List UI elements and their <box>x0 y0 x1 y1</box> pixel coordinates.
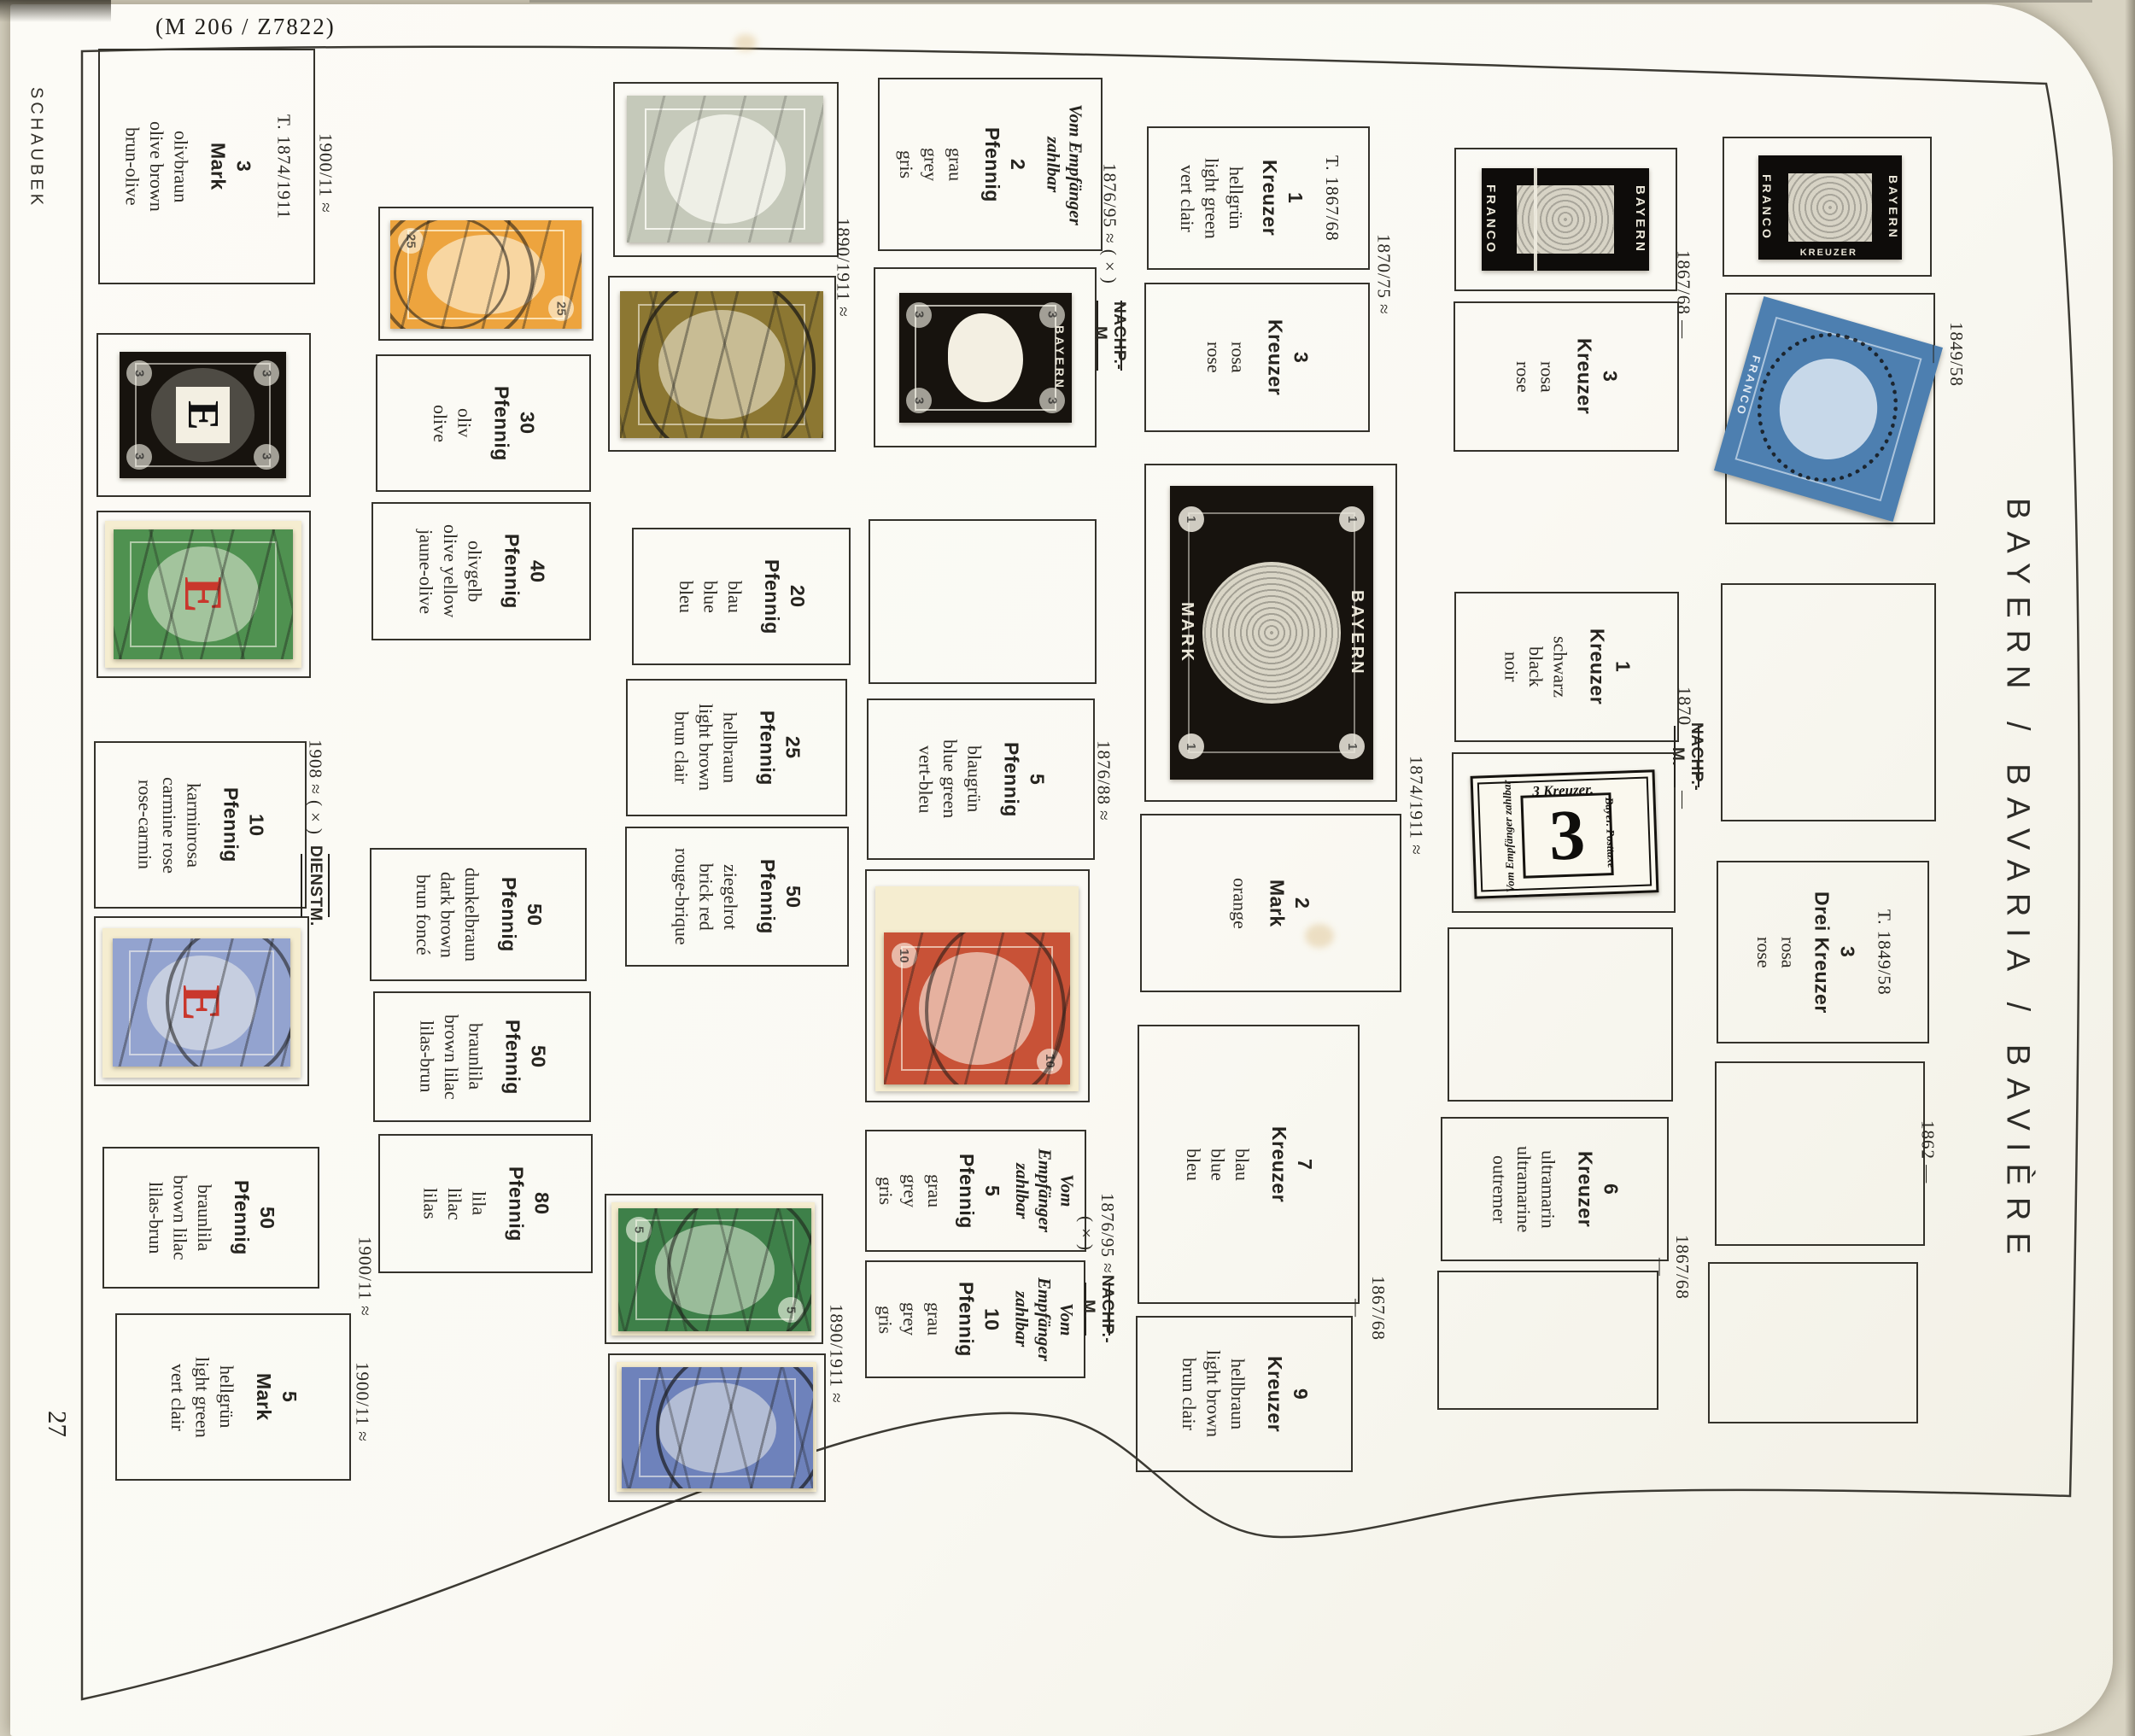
year-annotation: 1900/11 ≈ <box>351 1361 373 1442</box>
stamp-space: T. 1867/68 1 Kreuzer hellgrün light gree… <box>1147 126 1370 270</box>
postmark-icon <box>113 938 290 1067</box>
postmark-icon <box>627 96 823 243</box>
box-value: 20 Pfennig <box>758 559 810 634</box>
dienstmarken-tag: DIENSTM. <box>301 854 330 917</box>
box-due-text: Vom Empfänger zahlbar <box>1042 104 1087 225</box>
postmark-icon <box>618 1208 811 1331</box>
stamp-space: 5 5 <box>605 1194 823 1344</box>
postmark-icon <box>620 291 823 438</box>
box-value: 40 Pfennig <box>499 534 550 609</box>
year-annotation: 1900/11 ≈ <box>313 114 338 233</box>
stamp-space: 5 Pfennig blaugrün blue green vert-bleu <box>867 698 1095 860</box>
stamp-space: Vom Empfänger zahlbar 5 Pfennig grau gre… <box>865 1130 1086 1252</box>
stamp-space <box>613 82 839 257</box>
box-value: 3 Drei Kreuzer <box>1809 891 1860 1014</box>
box-value: 5 Mark <box>250 1373 301 1421</box>
year-annotation: 1870/75 ≈ <box>1373 232 1394 316</box>
stamp-space <box>608 276 836 452</box>
stamp-center-oval <box>1202 562 1341 703</box>
box-value: 5 Pfennig <box>953 1154 1004 1229</box>
stamp-1kr-black-1849: BAYERN FRANCO <box>1482 168 1649 271</box>
box-value: 50 Pfennig <box>500 1020 551 1095</box>
stamp-space-empty <box>1437 1271 1658 1410</box>
stamp-space: BAYERN MARK 1 1 1 1 <box>1144 464 1397 802</box>
stamp-franco-label: FRANCO <box>1760 155 1774 260</box>
stamp-5pf-official-green: E <box>114 529 293 659</box>
box-colors: blaugrün blue green vert-bleu <box>913 739 986 818</box>
box-colors: olivbraun olive brown brun-olive <box>120 121 193 212</box>
year-annotation: 1867/68 — <box>1672 249 1694 340</box>
stamp-space-empty <box>1715 1061 1925 1246</box>
box-colors: ultramarin ultramarine outremer <box>1487 1146 1560 1232</box>
stamp-space: 6 Kreuzer ultramarin ultramarine outreme… <box>1441 1117 1669 1261</box>
box-colors: blau blue bleu <box>1180 1149 1254 1181</box>
stamp-guilloche <box>1517 185 1614 253</box>
stamp-space: 20 Pfennig blau blue bleu <box>632 528 851 665</box>
stamp-3pf-postage-due-black: 3 3 3 3 BAYERN <box>899 293 1072 423</box>
stamp-label: Bayer. Posttaxe <box>1602 797 1618 868</box>
year-annotation: 1849/58 — <box>1935 312 1956 397</box>
postmark-icon <box>884 932 1070 1084</box>
box-colors: karminrosa carmine rose rose-carmin <box>132 777 206 874</box>
box-value: 7 Kreuzer <box>1266 1126 1317 1202</box>
box-colors: grau grey gris <box>873 1174 946 1207</box>
box-colors: braunlila brown lilac lilas-brun <box>143 1175 216 1260</box>
denomination: 3 <box>254 360 279 386</box>
year-annotation: 1876/95 ≈ (×) <box>1098 150 1120 297</box>
year-annotation: 1900/11 ≈ <box>354 1231 376 1321</box>
stamp-space: 9 Kreuzer hellbraun light brown brun cla… <box>1136 1316 1353 1472</box>
stamp-space: 3 3 3 3 BAYERN <box>874 267 1097 447</box>
box-value: 50 Pfennig <box>495 877 547 952</box>
stamp-20pf-official-blue: E <box>113 938 290 1067</box>
stamp-space: 50 Pfennig ziegelrot brick red rouge-bri… <box>625 827 849 967</box>
stamp-space: 5 Mark hellgrün light green vert clair <box>115 1313 351 1481</box>
dash-annotation: — <box>1674 787 1693 813</box>
stamp-space-empty <box>1721 583 1936 821</box>
box-value: 3 Mark <box>205 143 256 190</box>
stamp-space: 80 Pfennig lila lilac lilas <box>378 1134 593 1273</box>
stamp-3kr-blue-1849: FRANCO <box>1714 296 1943 522</box>
stamp-space: Vom Empfänger zahlbar 2 Pfennig grau gre… <box>878 78 1103 251</box>
box-due-text: Vom Empfänger zahlbar <box>1010 1262 1078 1377</box>
year-annotation: 1876/95 ≈ (×) <box>1086 1185 1107 1281</box>
stamp-space: T. 1874/1911 3 Mark olivbraun olive brow… <box>98 49 315 284</box>
box-colors: hellbraun light brown brun clair <box>1176 1350 1249 1437</box>
stamp-space: 50 Pfennig braunlila brown lilac lilas-b… <box>102 1147 319 1289</box>
album-photo: (M 206 / Z7822) SCHAUBEK 27 BAYERN / BAV… <box>0 0 2135 1736</box>
stamp-space: 25 Pfennig hellbraun light brown brun cl… <box>626 679 847 816</box>
stamp-2pf-grey <box>627 96 823 243</box>
stamp-center <box>948 313 1024 401</box>
e-overprint: E <box>176 387 229 442</box>
stamp-space: E <box>97 511 311 678</box>
box-value: 10 Pfennig <box>218 787 269 862</box>
year-annotation: 1870 <box>1674 688 1694 724</box>
stamp-space: 3 3 3 3 E <box>97 333 311 497</box>
year-annotation: 1874/1911 ≈ <box>1405 753 1427 857</box>
box-value: 9 Kreuzer <box>1261 1356 1313 1432</box>
stamp-space-empty <box>869 519 1097 684</box>
box-colors: grau grey gris <box>873 1302 946 1336</box>
stamp-space: BAYERN FRANCO <box>1454 148 1677 291</box>
box-colors: hellgrün light green vert clair <box>1174 158 1248 239</box>
box-colors: orange <box>1227 878 1252 929</box>
box-value: 80 Pfennig <box>503 1166 554 1242</box>
box-value: 3 Kreuzer <box>1262 319 1313 395</box>
stamp-space <box>608 1353 826 1502</box>
box-colors: dunkelbraun dark brown brun foncé <box>410 868 483 962</box>
box-value: 25 Pfennig <box>754 710 805 786</box>
stamp-space: 2 Mark orange <box>1140 814 1401 992</box>
stamp-franco-label: FRANCO <box>1483 168 1498 271</box>
box-value: 50 Pfennig <box>228 1180 279 1255</box>
box-colors: hellbraun light brown brun clair <box>669 704 742 791</box>
stamp-guilloche <box>1788 173 1871 243</box>
stamp-space: 50 Pfennig braunlila brown lilac lilas-b… <box>373 991 591 1122</box>
stamp-space: 25 25 <box>378 207 594 341</box>
box-value: 10 Pfennig <box>953 1282 1004 1357</box>
year-annotation: 1890/1911 ≈ <box>832 203 854 331</box>
denomination: 1 <box>1179 506 1204 532</box>
stamp-3pf-olive <box>620 291 823 438</box>
denomination: 3 <box>906 302 932 328</box>
stamp-country-label: BAYERN <box>1886 155 1900 260</box>
stamp-20pf-blue <box>622 1367 813 1488</box>
photo-catalog-label: (M 206 / Z7822) <box>155 14 336 40</box>
postmark-icon <box>622 1367 813 1488</box>
stamp-space: E <box>94 916 309 1086</box>
box-colors: rosa rose <box>1752 937 1800 968</box>
nachportomarken-tag: NACHP.-M. <box>1097 301 1122 371</box>
box-colors: olivgelb olive yellow jaune-olive <box>413 524 487 617</box>
box-value: 6 Kreuzer <box>1572 1151 1623 1227</box>
box-due-text: Vom Empfänger zahlbar <box>1011 1131 1079 1250</box>
stamp-space: 10 10 <box>865 869 1090 1102</box>
box-colors: blau blue bleu <box>673 581 746 613</box>
page-title: BAYERN / BAVARIA / BAVIÈRE <box>1990 383 2044 1382</box>
box-value: 1 Kreuzer <box>1584 628 1635 704</box>
denomination: 3 <box>126 360 152 386</box>
box-colors: ziegelrot brick red rouge-brique <box>669 848 742 945</box>
box-value: 2 Pfennig <box>979 127 1030 202</box>
box-value: 1 Kreuzer <box>1256 160 1307 236</box>
stamp-numeral: 3 <box>1520 792 1614 879</box>
stamp-space: 10 Pfennig karminrosa carmine rose rose-… <box>94 741 307 909</box>
box-value: 50 Pfennig <box>754 859 805 934</box>
box-value: 2 Mark <box>1263 880 1314 927</box>
denomination: 1 <box>1179 734 1204 759</box>
foxing-spot <box>734 34 757 51</box>
stamp-5pf-green: 5 5 <box>618 1208 811 1331</box>
denomination: 3 <box>126 444 152 470</box>
stamp-space: 3 Kreuzer rosa rose <box>1454 301 1679 452</box>
box-colors: lila lilac lilas <box>418 1188 491 1220</box>
box-colors: grau grey gris <box>893 148 967 181</box>
box-value: 3 Kreuzer <box>1571 338 1623 414</box>
stamp-space: T. 1849/58 3 Drei Kreuzer rosa rose <box>1717 861 1929 1043</box>
box-colors: oliv olive <box>428 405 477 442</box>
stamp-25pf-orange: 25 25 <box>390 220 582 329</box>
stamp-space: 3 Kreuzer rosa rose <box>1144 283 1370 432</box>
stamp-space: 40 Pfennig olivgelb olive yellow jaune-o… <box>371 502 591 640</box>
box-colors: rosa rose <box>1202 342 1250 373</box>
denomination: 3 <box>254 444 279 470</box>
stamp-crease <box>1534 168 1537 271</box>
stamp-space-empty <box>1708 1262 1918 1423</box>
stamp-space: 50 Pfennig dunkelbraun dark brown brun f… <box>370 848 587 981</box>
stamp-3pf-official-black: 3 3 3 3 E <box>120 352 286 478</box>
nachportomarken-tag: NACHP.-M. <box>1674 726 1699 787</box>
stamp-space: 1 Kreuzer schwarz black noir <box>1454 592 1679 742</box>
album-brand: SCHAUBEK <box>20 87 51 215</box>
postmark-icon <box>114 529 293 659</box>
box-value: 30 Pfennig <box>488 386 540 461</box>
stamp-space: 30 Pfennig oliv olive <box>376 354 591 492</box>
stamp-country-label: BAYERN <box>1633 168 1647 271</box>
stamp-country-label: BAYERN <box>1053 293 1067 423</box>
year-annotation: 1890/1911 ≈ <box>825 1299 847 1408</box>
year-annotation: 1862 — <box>1917 1110 1938 1194</box>
box-colors: rosa rose <box>1511 361 1559 393</box>
box-colors: schwarz black noir <box>1499 636 1572 698</box>
year-annotation: 1876/88 ≈ <box>1093 733 1114 828</box>
postmark-icon <box>390 220 582 329</box>
box-colors: hellgrün light green vert clair <box>165 1357 238 1438</box>
stamp-space: 3 Kreuzer. 3 Bayer. Posttaxe Vom Empfäng… <box>1452 752 1676 913</box>
stamp-space: BAYERN FRANCO KREUZER <box>1723 137 1932 277</box>
box-header: T. 1867/68 <box>1321 155 1342 242</box>
year-annotation: 1908 ≈ (×) <box>302 726 328 850</box>
stamp-10pf-red: 10 10 <box>884 932 1070 1084</box>
box-value: 5 Pfennig <box>998 742 1050 817</box>
box-header: T. 1849/58 <box>1873 909 1894 996</box>
box-header: T. 1874/1911 <box>272 114 294 219</box>
stamp-space: FRANCO <box>1725 293 1935 524</box>
stamp-1-mark-black: BAYERN MARK 1 1 1 1 <box>1170 486 1373 780</box>
stamp-schwarzer-einser: BAYERN FRANCO KREUZER <box>1758 155 1902 260</box>
page-number: 27 <box>39 1397 75 1450</box>
stamp-space: Vom Empfänger zahlbar 10 Pfennig grau gr… <box>865 1260 1085 1378</box>
year-annotation: 1867/68 — <box>1659 1226 1683 1307</box>
stamp-space-empty <box>1448 927 1673 1102</box>
stamp-value-label: KREUZER <box>1787 246 1870 260</box>
year-annotation: 1867/68 — <box>1356 1264 1378 1353</box>
stamp-space: 7 Kreuzer blau blue bleu <box>1138 1025 1360 1304</box>
box-colors: braunlila brown lilac lilas-brun <box>414 1014 488 1100</box>
nachportomarken-tag: NACHP.-M. <box>1085 1283 1110 1336</box>
stamp-3kr-postage-due: 3 Kreuzer. 3 Bayer. Posttaxe Vom Empfäng… <box>1471 769 1659 898</box>
